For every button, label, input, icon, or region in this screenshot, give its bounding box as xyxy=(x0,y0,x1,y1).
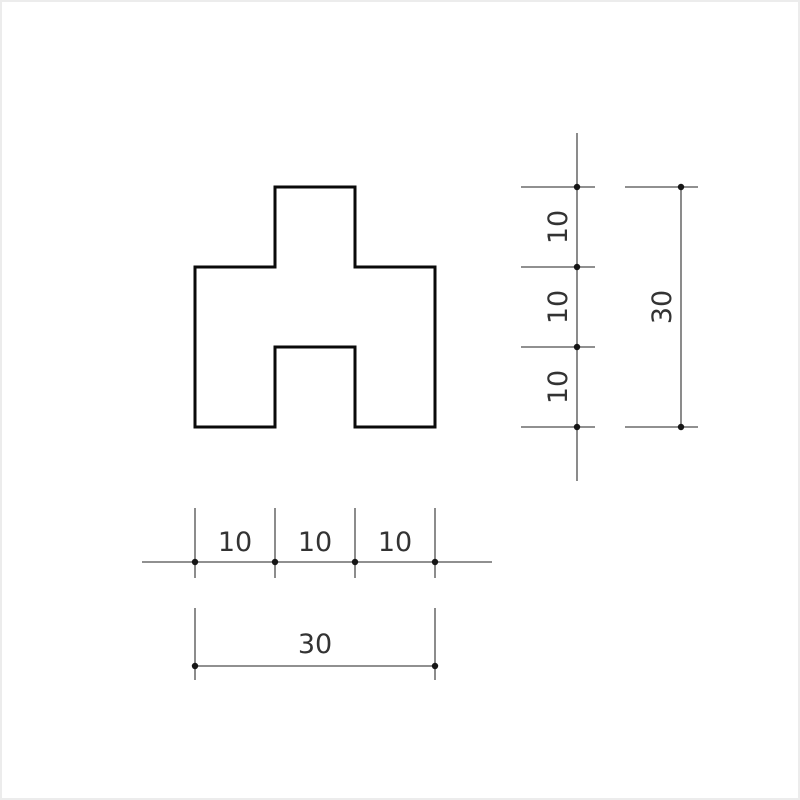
dimension-label: 10 xyxy=(378,527,412,558)
drawing-canvas: 10 10 10 30 10 10 10 xyxy=(0,0,800,800)
technical-drawing: 10 10 10 30 10 10 10 xyxy=(0,0,800,800)
dimension-label: 10 xyxy=(218,527,252,558)
dimension-label: 10 xyxy=(543,290,574,324)
dimension-dot xyxy=(574,264,580,270)
dimension-dot xyxy=(574,184,580,190)
dimension-label: 10 xyxy=(543,370,574,404)
horizontal-dimension-total: 30 xyxy=(192,608,438,680)
dimension-dot xyxy=(678,184,684,190)
dimension-dot xyxy=(272,559,278,565)
part-outline xyxy=(195,187,435,427)
dimension-dot xyxy=(574,424,580,430)
dimension-dot xyxy=(574,344,580,350)
dimension-label: 30 xyxy=(298,629,332,660)
dimension-dot xyxy=(192,663,198,669)
dimension-dot xyxy=(192,559,198,565)
dimension-dot xyxy=(432,559,438,565)
dimension-label: 30 xyxy=(647,290,678,324)
dimension-label: 10 xyxy=(543,210,574,244)
vertical-dimension-chain: 10 10 10 xyxy=(521,133,595,481)
dimension-dot xyxy=(432,663,438,669)
dimension-dot xyxy=(352,559,358,565)
vertical-dimension-total: 30 xyxy=(625,184,698,430)
dimension-dot xyxy=(678,424,684,430)
dimension-label: 10 xyxy=(298,527,332,558)
part-outline-group xyxy=(195,187,435,427)
horizontal-dimension-chain: 10 10 10 xyxy=(142,508,492,578)
